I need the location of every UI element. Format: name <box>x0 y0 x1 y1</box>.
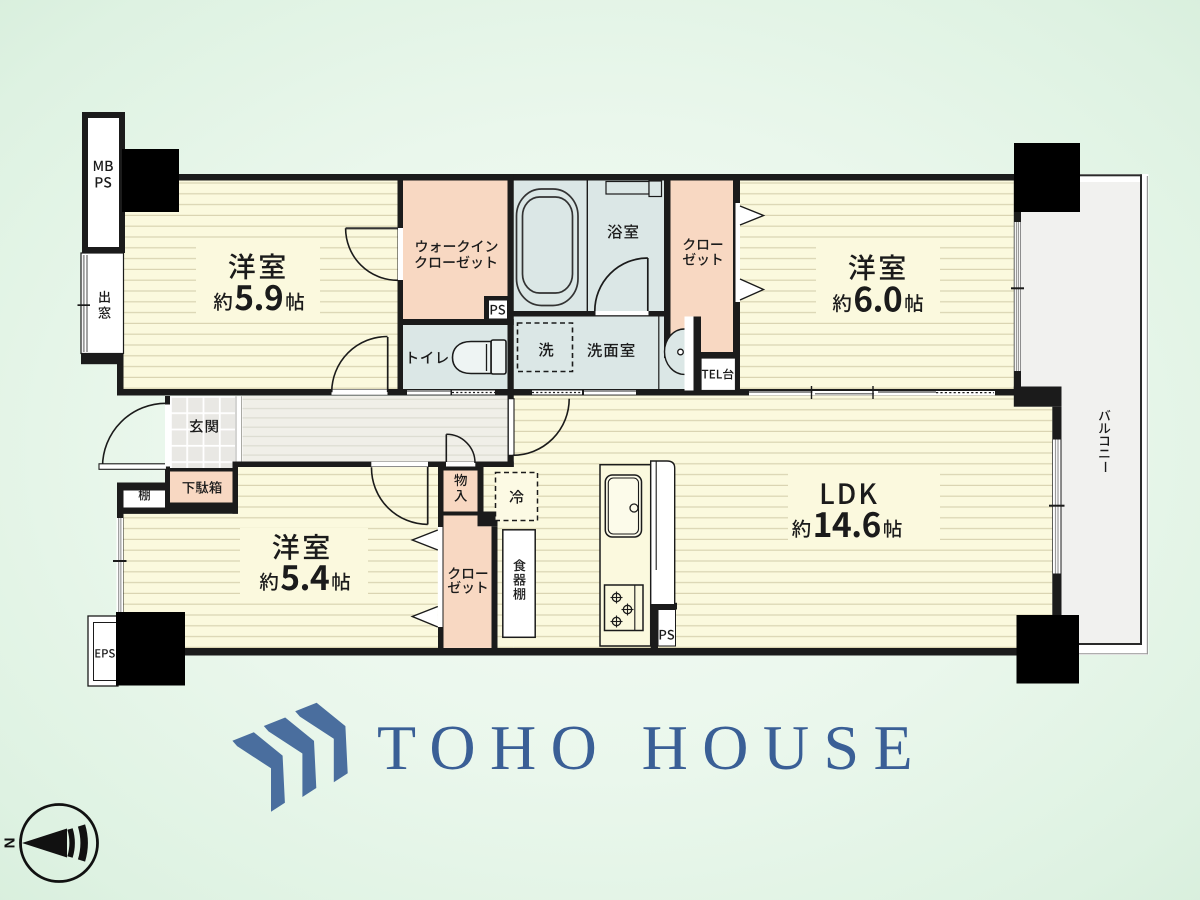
svg-text:N: N <box>1 838 18 849</box>
svg-text:TOHO HOUSE: TOHO HOUSE <box>377 712 927 783</box>
